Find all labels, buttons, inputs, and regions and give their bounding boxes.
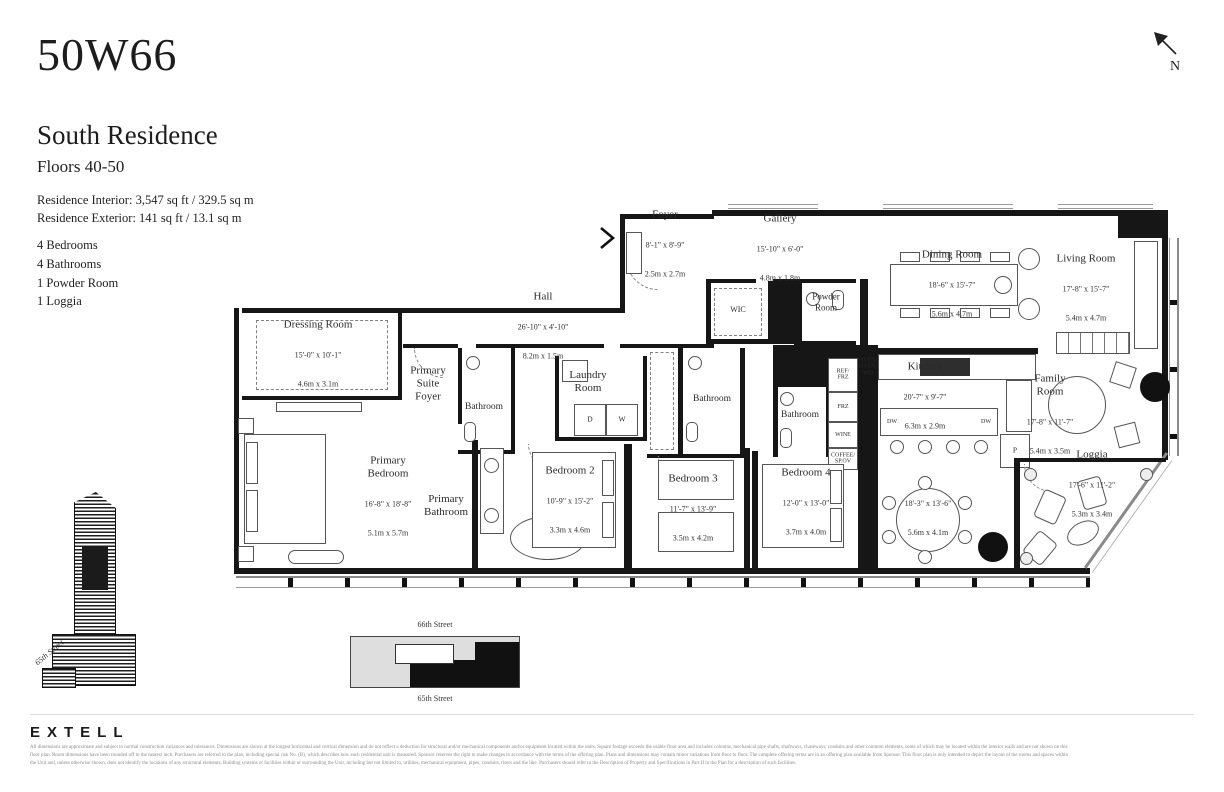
dining-chair [900,308,920,318]
wall [472,440,478,574]
wall [752,451,758,574]
sink [484,508,499,523]
key-map: 66th Street 65th Street [340,620,530,710]
room-label-powder: Powder Room [812,273,840,330]
floors-subtitle: Floors 40-50 [37,157,124,177]
room-label-laundry: Laundry Room [569,351,606,413]
wall [620,214,625,313]
wall [860,279,868,349]
dining-chair [990,252,1010,262]
label-wine: WINE [835,432,851,438]
feature-list: 4 Bedrooms 4 Bathrooms 1 Powder Room 1 L… [37,236,118,311]
floorplan-page: 50W66 South Residence Floors 40-50 Resid… [0,0,1224,792]
tower-base-annex [42,668,76,688]
label-pantry: P [1013,447,1017,456]
area-stats: Residence Interior: 3,547 sq ft / 329.5 … [37,192,254,227]
south-window-band [236,576,1090,588]
room-label-dressing: Dressing Room 15'-0" x 10'-1" 4.6m x 3.1… [284,301,353,408]
label-washer: W [618,416,625,425]
room-label-dining: Dining Room 18'-6" x 15'-7" 5.6m x 4.7m [922,231,982,338]
room-label-living: Living Room 17'-8" x 15'-7" 5.4m x 4.7m [1057,235,1116,342]
wall [706,279,756,283]
room-label-kitchen: Kitchen 20'-7" x 9'-7" 6.3m x 2.9m [904,343,947,450]
brand-logo: 50W66 [37,28,177,81]
wall [1014,458,1020,572]
feature-powder: 1 Powder Room [37,274,118,293]
breakfast-chair [882,530,896,544]
nightstand [238,418,254,434]
sink [466,356,480,370]
label-ref-frz: REF/ FRZ [837,369,850,382]
street-label-bottom: 65th Street [418,694,453,703]
label-dryer: D [587,416,592,425]
armchair [1114,422,1141,449]
sink [484,458,499,473]
room-label-primary-bathroom: Primary Bathroom [424,475,468,537]
footer-divider [30,714,1194,715]
wall [740,348,745,458]
column [1140,372,1170,402]
wall [555,437,647,441]
armchair [1109,361,1137,389]
wall-corner-mass [1118,210,1168,238]
wall [234,568,1090,574]
column [978,532,1008,562]
room-label-bathroom-a: Bathroom [465,384,503,432]
side-table [994,276,1012,294]
stool [974,440,988,454]
wall [620,344,714,348]
stool [890,440,904,454]
room-label-family: Family Room 17'-8" x 11'-7" 5.4m x 3.5m [1027,354,1073,473]
breakfast-chair [882,496,896,510]
label-dw-right: DW [981,419,991,425]
feature-bathrooms: 4 Bathrooms [37,255,118,274]
feature-loggia: 1 Loggia [37,292,118,311]
pillow [830,470,842,504]
east-window-band [1169,238,1179,456]
nightstand [238,546,254,562]
key-map-unit-outline [395,644,454,664]
feature-bedrooms: 4 Bedrooms [37,236,118,255]
hall-closet [650,352,674,450]
north-window [1058,204,1153,209]
room-label-foyer: Foyer 8'-1" x 8'-9" 2.5m x 2.7m [645,191,685,298]
wall [398,308,402,400]
bench [288,550,344,564]
wall [458,348,462,424]
wall [234,308,239,574]
legal-disclaimer: All dimensions are approximate and subje… [30,744,1192,768]
sofa [1134,241,1158,349]
wall [511,348,515,454]
wall [678,348,683,458]
foyer-closet [626,232,642,274]
wall [624,444,632,574]
room-label-gallery: Gallery 15'-10" x 6'-0" 4.8m x 1.8m [757,195,804,302]
room-label-primary-suite-foyer: Primary Suite Foyer [410,347,445,422]
key-map-highlight [410,660,519,687]
room-label-loggia: Loggia 17'-6" x 11'-2" 5.3m x 3.4m [1069,431,1115,538]
toilet [686,422,698,442]
pillow [830,508,842,542]
stool [946,440,960,454]
interior-area: Residence Interior: 3,547 sq ft / 329.5 … [37,192,254,210]
disclaimer-line: floor plan. Room dimensions have been ro… [30,752,1192,760]
floor-plan: Foyer 8'-1" x 8'-9" 2.5m x 2.7m Gallery … [228,196,1176,596]
breakfast-chair [958,496,972,510]
dining-chair [990,308,1010,318]
svg-text:N: N [1170,59,1180,74]
building-illustration: 65th Street [40,492,150,702]
room-label-primary-bedroom: Primary Bedroom 16'-8" x 18'-8" 5.1m x 5… [365,436,412,555]
room-label-bathroom-c: Bathroom [781,392,819,440]
room-label-breakfast: 18'-3" x 13'-6" 5.6m x 4.1m [905,480,952,556]
label-dw-left: DW [887,419,897,425]
pillow [246,490,258,532]
label-frz: FRZ [837,404,848,410]
wall-spine [858,345,878,574]
pillow [246,442,258,484]
wall [1162,210,1168,460]
room-label-wic: WIC [730,287,746,333]
north-window [883,204,1013,209]
room-label-bedroom4: Bedroom 4 12'-0" x 13'-0" 3.7m x 4.0m [781,449,830,556]
disclaimer-line: All dimensions are approximate and subje… [30,744,1192,752]
breakfast-chair [958,530,972,544]
wall [706,281,711,343]
label-ovens: OVEN/ OVEN/ WD [859,358,877,377]
tower-dark-panel [82,546,108,590]
north-arrow-icon: N [1140,26,1192,74]
loggia-chair [1033,488,1067,525]
extell-logo: EXTELL [30,724,130,741]
label-coffee: COFFEE/ SP.OV [831,453,855,466]
pillow [602,460,614,496]
dining-chair [900,252,920,262]
plant [1020,552,1033,565]
pillow [602,502,614,538]
key-map-footprint [350,636,520,688]
room-label-bedroom3: Bedroom 3 11'-7" x 13'-9" 3.5m x 4.2m [668,455,717,562]
armchair [1018,248,1040,270]
wall [706,339,768,344]
wall [643,356,647,441]
plant [1140,468,1153,481]
wall [773,387,778,457]
sink [688,356,702,370]
room-label-bedroom2: Bedroom 2 10'-9" x 15'-2" 3.3m x 4.6m [545,447,594,554]
room-label-bathroom-b: Bathroom [693,376,731,424]
wall [744,448,750,574]
disclaimer-line: the Unit and, unless otherwise shown, do… [30,760,1192,768]
room-label-hall: Hall 26'-10" x 4'-10" 8.2m x 1.5m [518,273,569,380]
armchair [1018,298,1040,320]
residence-title: South Residence [37,120,218,151]
street-label-top: 66th Street [418,620,453,629]
key-map-highlight [475,642,519,664]
exterior-area: Residence Exterior: 141 sq ft / 13.1 sq … [37,210,254,228]
